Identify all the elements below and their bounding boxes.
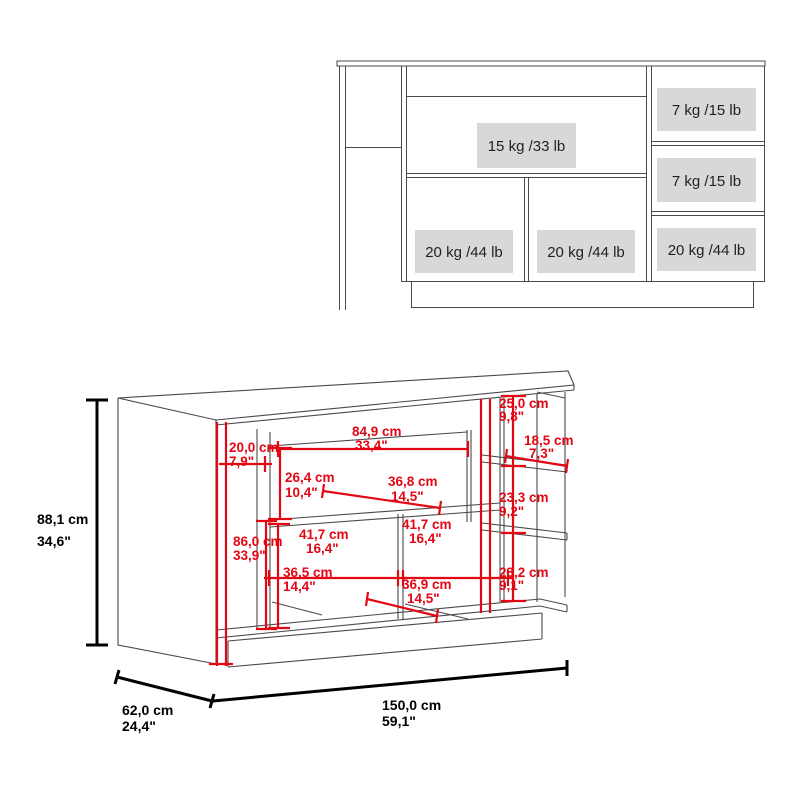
dim-depth-368-cm: 36,8 cm — [388, 474, 438, 489]
dim-total-height-cm: 88,1 cm — [37, 511, 88, 527]
dim-depth-185-inch: 7,3" — [529, 446, 554, 461]
isometric-view: 84,9 cm 33,4" 20,0 cm 7,9" 26,4 cm 10,4"… — [37, 371, 574, 734]
dim-total-width-cm: 150,0 cm — [382, 697, 441, 713]
dim-height-233-inch: 9,2" — [499, 504, 524, 519]
capacity-label-text: 7 kg /15 lb — [672, 173, 741, 190]
dim-height-365-inch: 14,4" — [283, 579, 316, 594]
capacity-label-text: 15 kg /33 lb — [488, 138, 566, 155]
dim-height-365-cm: 36,5 cm — [283, 565, 333, 580]
capacity-label-text: 20 kg /44 lb — [668, 242, 746, 259]
dim-width-417-left-inch: 16,4" — [306, 541, 339, 556]
dim-height-264-cm: 26,4 cm — [285, 470, 335, 485]
dim-depth-368-inch: 14,5" — [391, 489, 424, 504]
dim-height-250-inch: 9,8" — [499, 409, 524, 424]
dim-width-849-cm: 84,9 cm — [352, 424, 402, 439]
dim-width-849-inch: 33,4" — [355, 438, 388, 453]
front-elevation-view: 15 kg /33 lb 7 kg /15 lb 7 kg /15 lb 20 … — [337, 61, 765, 310]
capacity-label-cabinet-left: 20 kg /44 lb — [415, 230, 513, 273]
dim-width-417-left-cm: 41,7 cm — [299, 527, 349, 542]
capacity-label-drawer-top: 7 kg /15 lb — [657, 88, 756, 131]
dim-depth-369-inch: 14,5" — [407, 591, 440, 606]
capacity-label-shelf: 15 kg /33 lb — [477, 123, 576, 168]
dim-total-depth-inch: 24,4" — [122, 718, 156, 734]
dim-height-233-cm: 23,3 cm — [499, 490, 549, 505]
furniture-dimension-diagram: 15 kg /33 lb 7 kg /15 lb 7 kg /15 lb 20 … — [0, 0, 800, 800]
dim-depth-200-cm: 20,0 cm — [229, 440, 279, 455]
dim-total-depth-cm: 62,0 cm — [122, 702, 173, 718]
dim-height-860-inch: 33,9" — [233, 548, 266, 563]
dim-depth-200-inch: 7,9" — [229, 454, 254, 469]
dim-height-232-inch: 9,1" — [499, 578, 524, 593]
capacity-label-cabinet-middle: 20 kg /44 lb — [537, 230, 635, 273]
capacity-label-text: 20 kg /44 lb — [547, 244, 625, 261]
capacity-label-text: 20 kg /44 lb — [425, 244, 503, 261]
dim-total-height-inch: 34,6" — [37, 533, 71, 549]
dim-width-417-right-cm: 41,7 cm — [402, 517, 452, 532]
capacity-label-cabinet-right: 20 kg /44 lb — [657, 228, 756, 271]
dim-depth-369-cm: 36,9 cm — [402, 577, 452, 592]
capacity-label-drawer-middle: 7 kg /15 lb — [657, 158, 756, 202]
dim-height-860-cm: 86,0 cm — [233, 534, 283, 549]
dim-width-417-right-inch: 16,4" — [409, 531, 442, 546]
dim-total-width-inch: 59,1" — [382, 713, 416, 729]
dim-height-264-inch: 10,4" — [285, 485, 318, 500]
capacity-label-text: 7 kg /15 lb — [672, 102, 741, 119]
